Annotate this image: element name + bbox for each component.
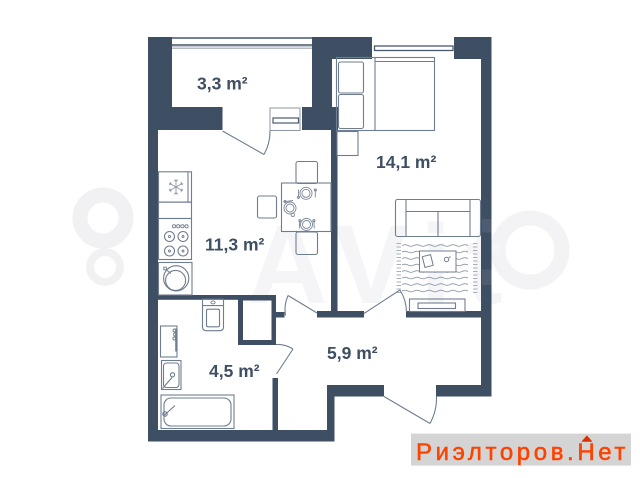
svg-text:4,5 m²: 4,5 m² bbox=[209, 361, 260, 381]
svg-text:3,3 m²: 3,3 m² bbox=[197, 74, 248, 94]
svg-text:5,9 m²: 5,9 m² bbox=[327, 343, 378, 363]
svg-text:14,1 m²: 14,1 m² bbox=[376, 152, 436, 172]
svg-text:11,3 m²: 11,3 m² bbox=[205, 235, 265, 255]
svg-text:Риэлторов.Нет: Риэлторов.Нет bbox=[416, 439, 629, 466]
